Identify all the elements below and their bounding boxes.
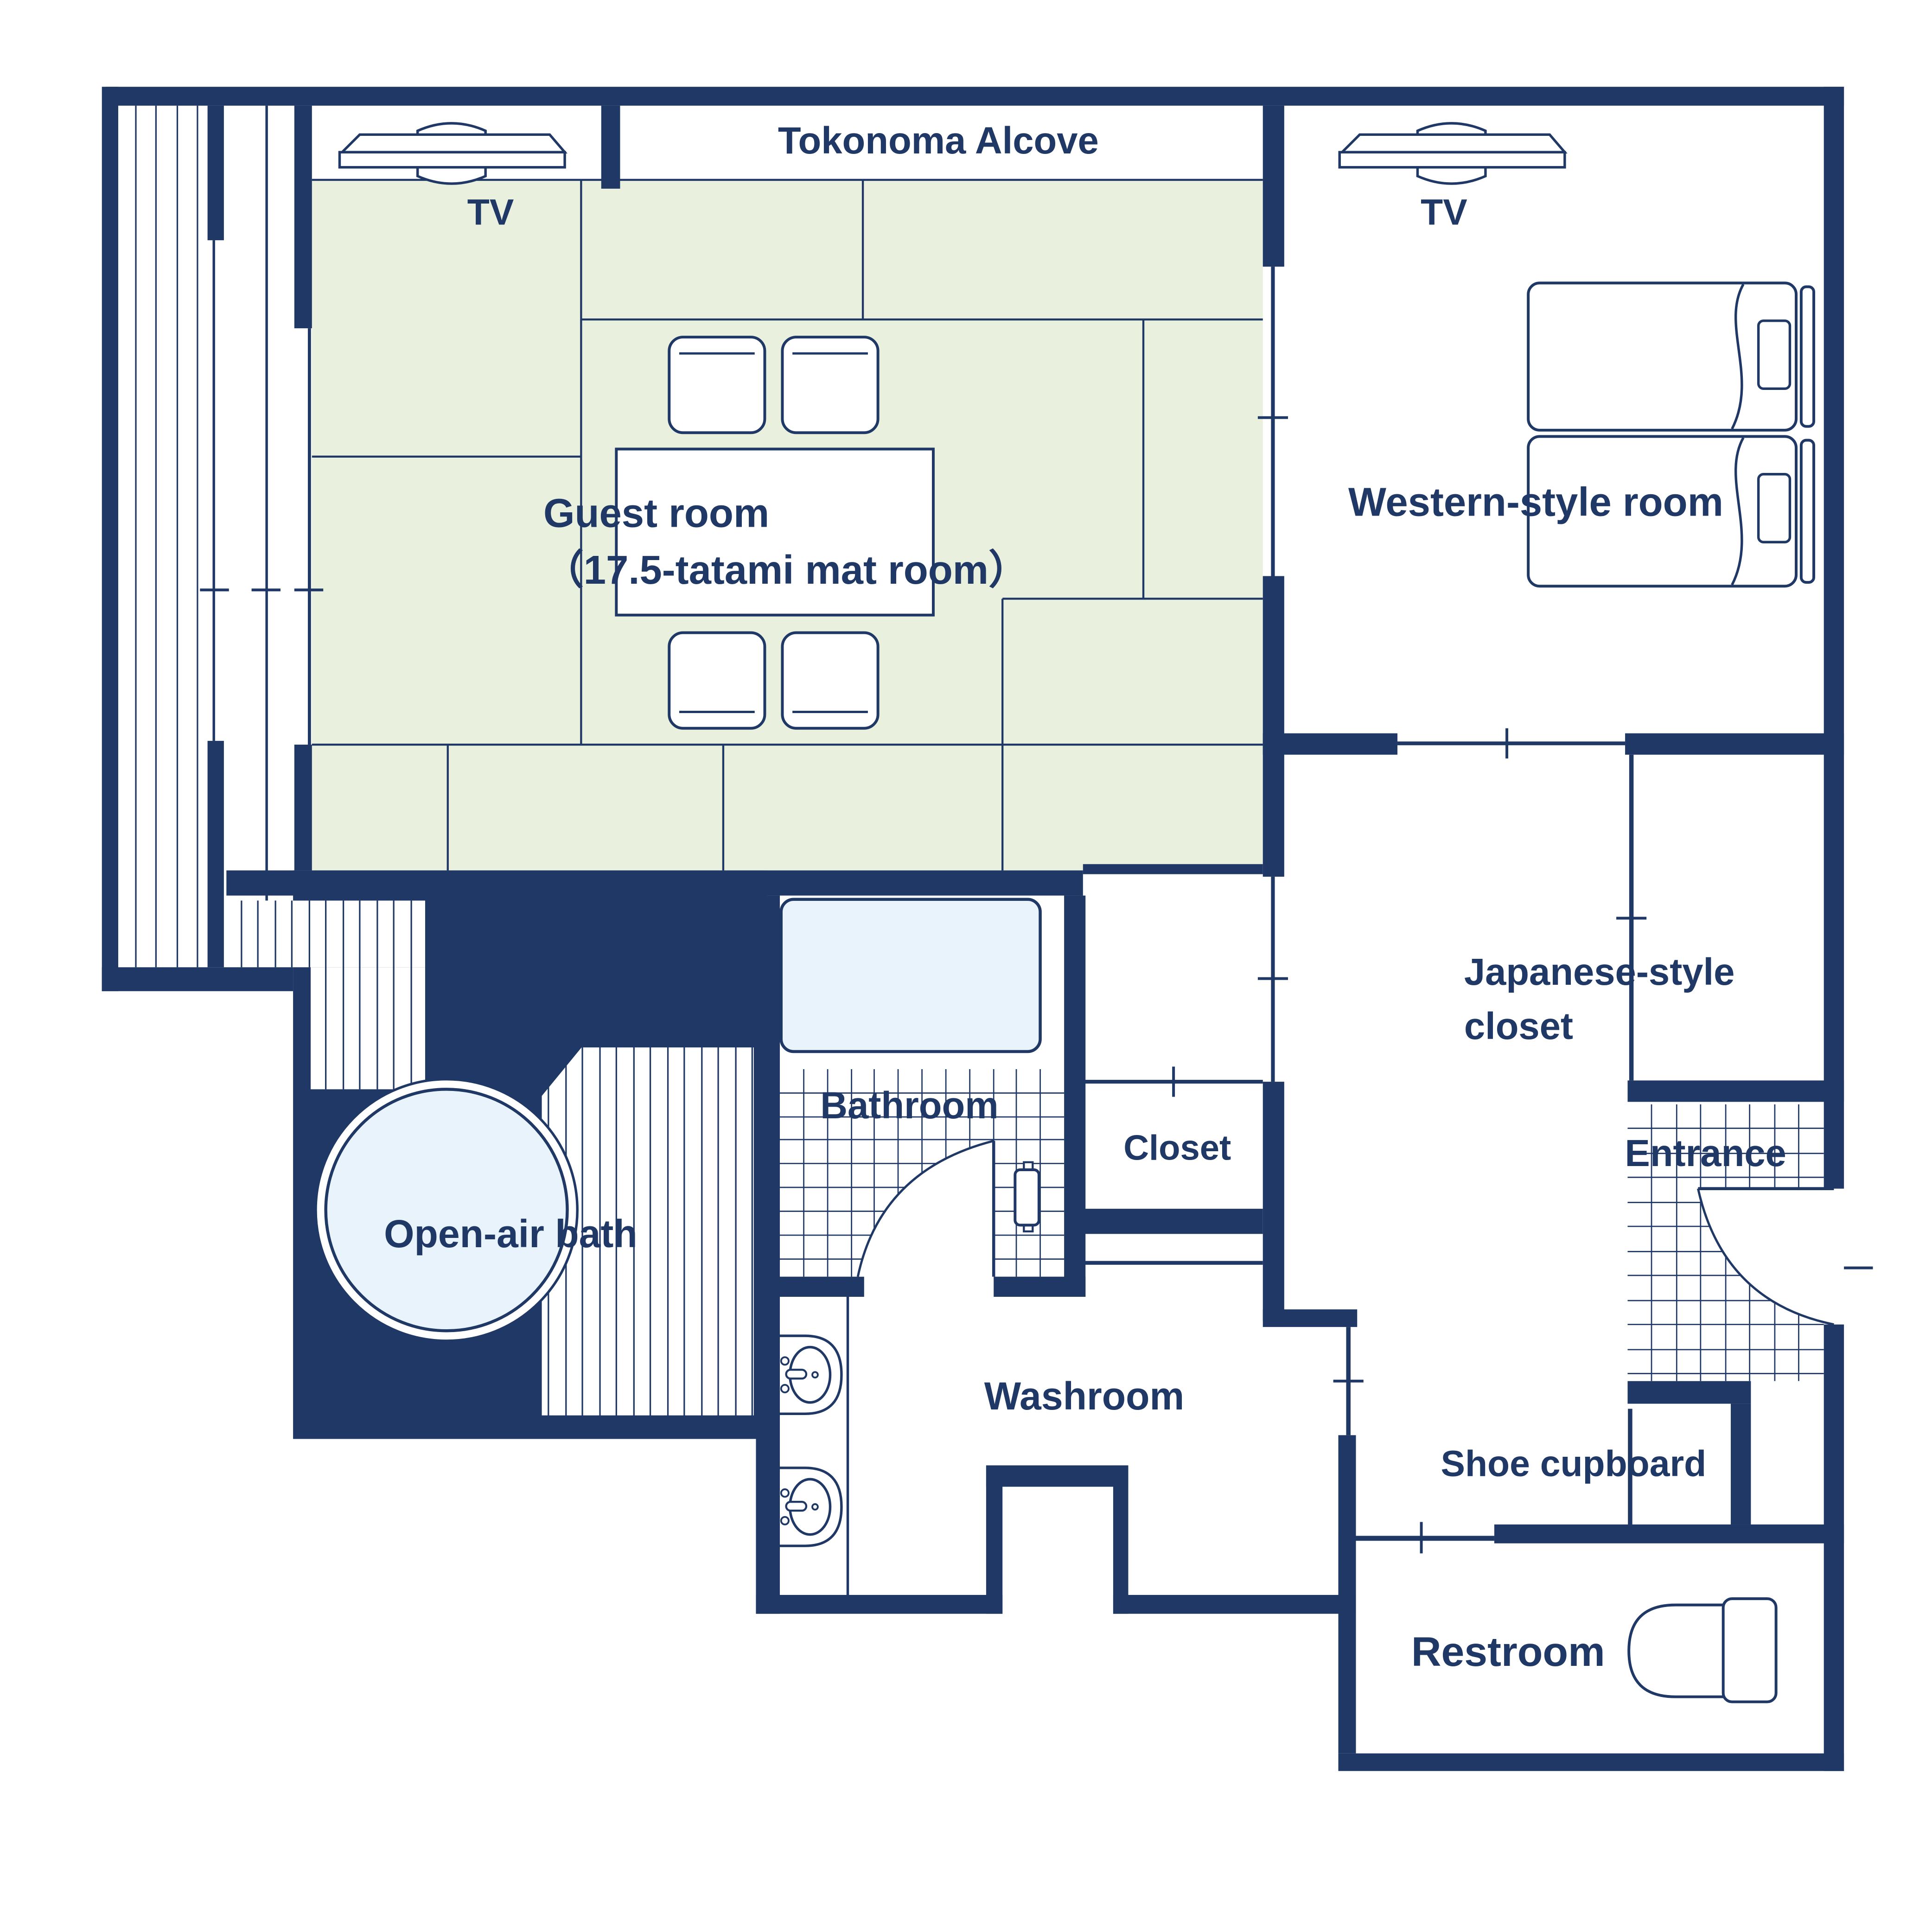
bathroom-door-arc — [858, 1141, 994, 1277]
veranda-planks — [136, 106, 198, 967]
entrance-door-arc — [1698, 1189, 1834, 1325]
label-restroom: Restroom — [1411, 1631, 1605, 1672]
shower-mixer-icon — [1015, 1162, 1039, 1231]
label-open-air-bath: Open-air bath — [384, 1214, 638, 1253]
label-japanese-closet-line2: closet — [1464, 1001, 1735, 1054]
bathtub-icon — [781, 899, 1040, 1052]
tv-icon-left — [339, 123, 565, 184]
label-entrance: Entrance — [1625, 1136, 1786, 1173]
engawa-lower-planks — [224, 900, 425, 1089]
label-tv-left: TV — [467, 196, 514, 232]
label-bathroom: Bathroom — [820, 1088, 998, 1126]
label-washroom: Washroom — [984, 1377, 1184, 1416]
label-tv-right: TV — [1421, 196, 1467, 232]
label-guest-room-line2: （17.5-tatami mat room） — [543, 542, 1029, 599]
label-shoe-cupboard: Shoe cupboard — [1441, 1447, 1707, 1484]
open-air-tub-icon — [316, 1079, 577, 1341]
tv-icon-right — [1339, 123, 1565, 184]
label-guest-room: Guest room（17.5-tatami mat room） — [543, 485, 1029, 600]
label-closet: Closet — [1123, 1131, 1231, 1166]
label-japanese-closet-line1: Japanese-style — [1464, 947, 1735, 1001]
sink-icons — [780, 1336, 842, 1546]
label-western-room: Western-style room — [1348, 482, 1723, 522]
label-japanese-closet: Japanese-stylecloset — [1464, 947, 1735, 1054]
floor-plan: Tokonoma Alcove TV TV Guest room（17.5-ta… — [0, 0, 1932, 1932]
toilet-icon — [1629, 1599, 1776, 1702]
label-tokonoma-alcove: Tokonoma Alcove — [778, 123, 1099, 161]
bed-icons — [1528, 283, 1814, 586]
label-guest-room-line1: Guest room — [543, 485, 1029, 542]
